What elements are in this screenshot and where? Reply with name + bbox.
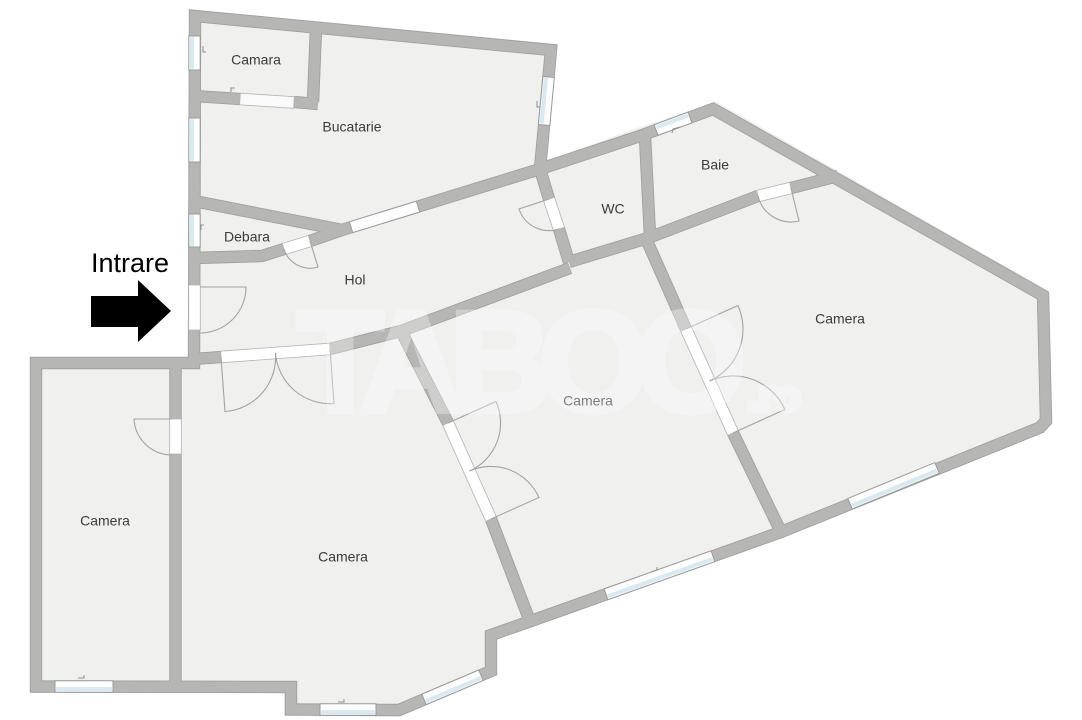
svg-text:.ro: .ro <box>747 372 801 419</box>
svg-text:Camera: Camera <box>815 311 865 327</box>
svg-text:Camera: Camera <box>318 549 368 565</box>
svg-text:Debara: Debara <box>224 229 270 245</box>
svg-text:Camera: Camera <box>80 513 130 529</box>
svg-text:TABOO: TABOO <box>297 282 740 442</box>
svg-text:Intrare: Intrare <box>91 248 169 278</box>
svg-text:Bucatarie: Bucatarie <box>322 119 381 135</box>
svg-text:WC: WC <box>601 201 624 217</box>
svg-text:Baie: Baie <box>701 157 729 173</box>
svg-text:Camara: Camara <box>231 52 281 68</box>
